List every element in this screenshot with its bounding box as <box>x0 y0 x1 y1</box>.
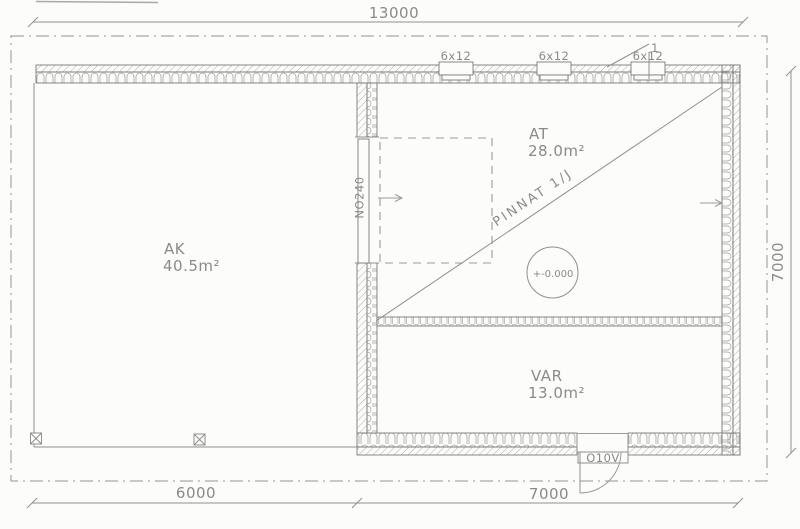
level-marker-label: +-0.000 <box>533 269 574 280</box>
carport-post <box>31 433 42 444</box>
bottom-dimension: 6000 7000 <box>27 484 743 508</box>
room-label-var: VAR 13.0m² <box>528 367 585 402</box>
door-direction-arrow <box>378 195 402 202</box>
room-area: 40.5m² <box>163 257 220 275</box>
room-area: 28.0m² <box>528 142 585 160</box>
window-sill <box>442 75 470 80</box>
partition-wall-outer-band <box>357 263 367 433</box>
bottom-right-dimension-label: 7000 <box>529 485 569 503</box>
room-name: AK <box>164 240 186 258</box>
right-wall-arrow <box>700 200 722 207</box>
garage-door-label: NO240 <box>353 176 367 218</box>
top-dimension: 13000 <box>28 4 748 27</box>
room-area: 13.0m² <box>528 384 585 402</box>
right-wall-outer-band <box>733 65 740 455</box>
right-dimension: 7000 <box>769 66 796 458</box>
room-label-at: AT 28.0m² <box>528 125 585 160</box>
window-6x12-3: 6x12 <box>631 49 665 80</box>
exterior-walls <box>36 65 740 455</box>
property-boundary-line <box>11 36 767 481</box>
bottom-wall-outer-band <box>628 447 740 455</box>
scan-artifact-line <box>36 2 158 3</box>
surface-note-label: PINNAT 1/J <box>490 166 575 230</box>
surface-note-line <box>376 87 722 321</box>
detail-reference-label: 1 <box>651 41 659 55</box>
floor-plan-svg: 13000 6000 7000 7000 <box>0 0 800 529</box>
room-name: AT <box>529 125 549 143</box>
room-label-ak: AK 40.5m² <box>163 240 220 275</box>
entry-door-label: O10V <box>586 451 620 465</box>
window-frame <box>631 62 665 75</box>
window-sill <box>634 75 662 80</box>
window-label: 6x12 <box>441 49 472 63</box>
partition-wall-inner-band <box>367 263 377 433</box>
right-wall-inner-band <box>722 65 733 455</box>
bottom-wall-inner-band <box>628 433 740 447</box>
level-marker: +-0.000 <box>527 247 578 298</box>
garage-door-no240: NO240 <box>353 137 493 263</box>
window-6x12-2: 6x12 <box>537 49 571 80</box>
surface-note: PINNAT 1/J <box>376 87 722 321</box>
window-frame <box>537 62 571 75</box>
window-label: 6x12 <box>539 49 570 63</box>
entry-door-o10v: O10V <box>577 433 628 494</box>
room-name: VAR <box>531 367 563 385</box>
bottom-left-dimension-label: 6000 <box>176 484 216 502</box>
window-sill <box>540 75 568 80</box>
right-dimension-label: 7000 <box>769 242 787 282</box>
partition-wall-inner-band <box>367 83 377 137</box>
carport-post <box>194 434 205 445</box>
interior-partition-at-var <box>377 317 722 326</box>
window-frame <box>439 62 473 75</box>
partition-wall-outer-band <box>357 83 367 137</box>
bottom-wall-outer-band <box>357 447 577 455</box>
bottom-wall-inner-band <box>357 433 577 447</box>
floor-plan-drawing: 13000 6000 7000 7000 <box>0 0 800 529</box>
window-6x12-1: 6x12 <box>439 49 473 80</box>
top-dimension-label: 13000 <box>369 4 419 22</box>
